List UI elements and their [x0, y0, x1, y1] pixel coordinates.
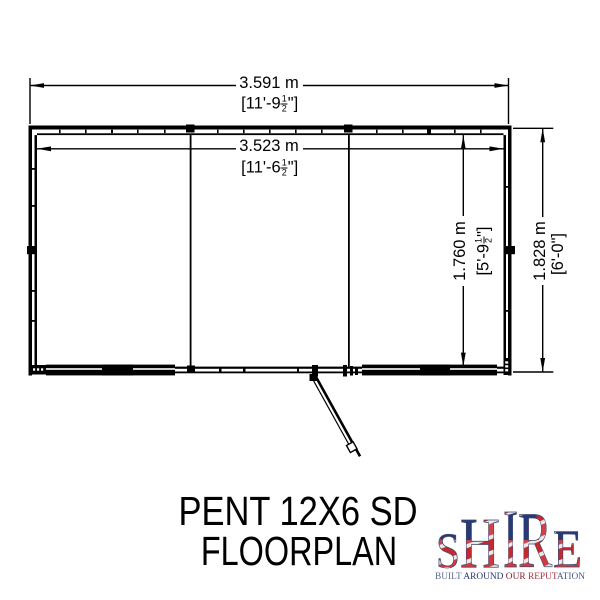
svg-text:BUILT AROUND OUR REPUTATION: BUILT AROUND OUR REPUTATION [435, 571, 586, 581]
